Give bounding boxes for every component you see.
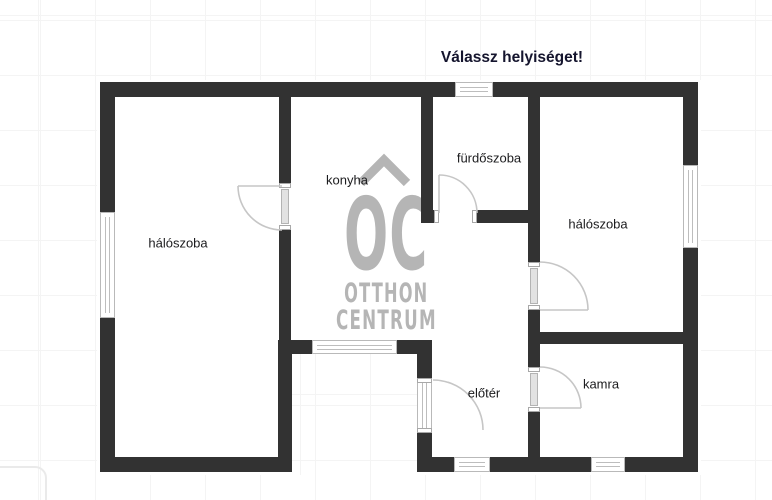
door-entrance-glazed [417,378,432,433]
label-hall: előtér [468,386,501,401]
window-top-bathroom [455,82,493,97]
room-bedroom-right[interactable] [540,97,683,332]
window-right-bedroom [683,165,698,248]
door-jamb [417,428,432,433]
wall-exterior-top [100,82,698,97]
door-jamb [528,367,540,372]
wall-porch-left [278,354,292,457]
wall-bathroom-left [421,97,433,210]
door-jamb [528,262,540,267]
room-bedroom-left[interactable] [115,97,279,457]
window-kitchen-porch [312,340,397,354]
door-jamb [417,378,432,383]
wall-bedroomright-bottom [528,332,683,344]
door-bedroom-left-leaf [281,189,289,224]
wall-exterior-bottom-left [100,457,292,472]
window-bottom-hall [454,457,490,472]
door-jamb [472,210,477,223]
room-hall[interactable] [432,354,528,457]
door-jamb [279,225,291,230]
window-bottom-pantry [591,457,625,472]
label-bedroom-right: hálószoba [568,217,627,232]
page-title: Válassz helyiséget! [441,49,583,67]
floorplan-canvas: OC OTTHON CENTRUM [0,0,772,500]
room-pantry[interactable] [540,344,683,457]
door-jamb [528,305,540,310]
room-kitchen[interactable] [291,97,421,340]
door-jamb [279,183,291,188]
door-bathroom [434,210,477,223]
wall-exterior-right [683,97,698,457]
label-pantry: kamra [583,377,619,392]
label-kitchen: konyha [326,173,368,188]
background-card-edge [0,466,47,500]
door-jamb [434,210,439,223]
window-left-bedroom [100,212,115,318]
label-bathroom: fürdőszoba [457,151,521,166]
door-jamb [528,407,540,412]
label-bedroom-left: hálószoba [148,236,207,251]
door-bedroom-right-leaf [530,268,538,304]
porch-notch [292,354,417,475]
door-pantry-leaf [530,373,538,406]
